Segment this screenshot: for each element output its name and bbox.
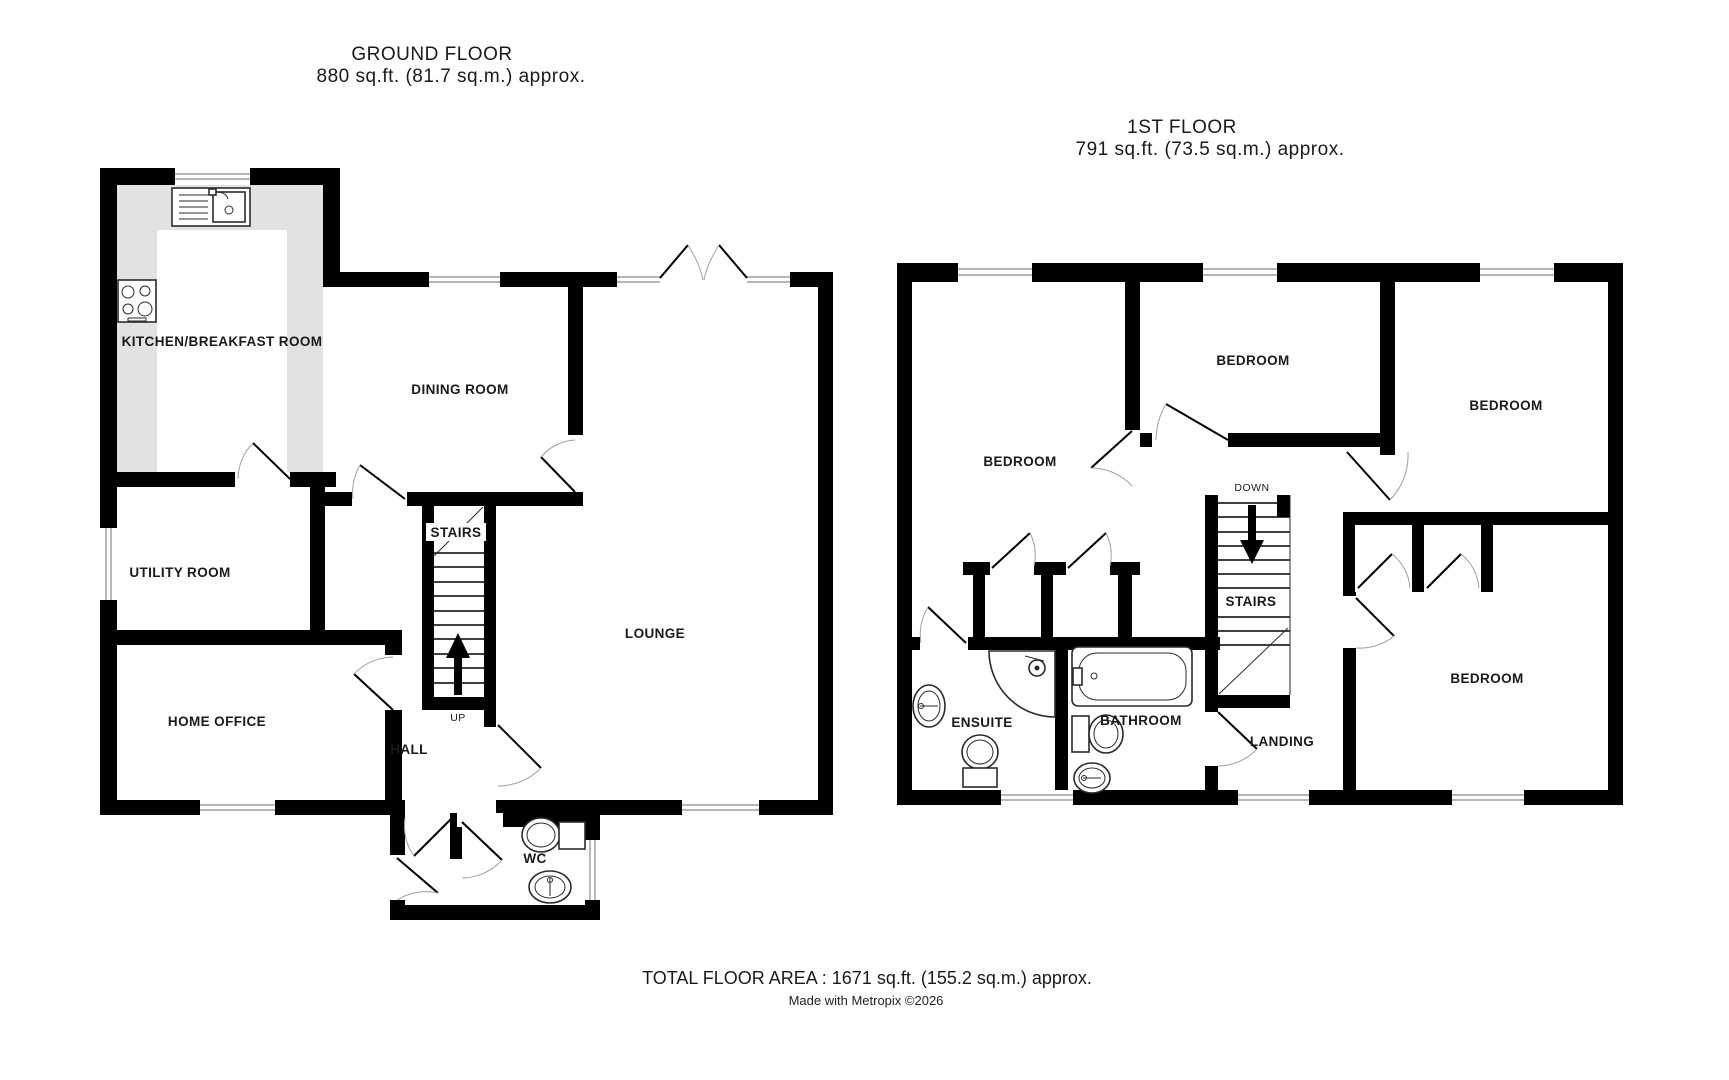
window xyxy=(1480,263,1554,282)
window xyxy=(617,272,660,287)
floorplan-drawing: KITCHEN/BREAKFAST ROOM DINING ROOM UTILI… xyxy=(0,0,1729,1080)
label-home-office: HOME OFFICE xyxy=(168,714,266,729)
svg-text:STAIRS: STAIRS xyxy=(431,525,482,540)
label-landing: LANDING xyxy=(1250,734,1314,749)
metropix-credit: Made with Metropix ©2026 xyxy=(789,993,944,1008)
window xyxy=(1238,790,1309,805)
down-arrow xyxy=(1240,505,1264,564)
label-stairs-ground: STAIRS xyxy=(426,523,486,541)
first-floor-area: 791 sq.ft. (73.5 sq.m.) approx. xyxy=(1076,139,1345,160)
floorplan-page: KITCHEN/BREAKFAST ROOM DINING ROOM UTILI… xyxy=(0,0,1729,1080)
window xyxy=(585,840,600,900)
window xyxy=(682,800,759,815)
ensuite-toilet xyxy=(962,735,998,787)
label-bedroom-left: BEDROOM xyxy=(983,454,1056,469)
window xyxy=(200,800,275,815)
label-lounge: LOUNGE xyxy=(625,626,685,641)
window xyxy=(1452,790,1524,805)
wc-toilet xyxy=(522,818,585,852)
hob xyxy=(118,280,156,322)
first-floor-plan: BEDROOM BEDROOM BEDROOM BEDROOM DOWN STA… xyxy=(897,263,1623,805)
ground-floor-title: GROUND FLOOR xyxy=(351,44,512,65)
kitchen-sink xyxy=(172,188,250,226)
label-bedroom-bottom: BEDROOM xyxy=(1450,671,1523,686)
window xyxy=(100,528,117,600)
window xyxy=(958,263,1032,282)
label-bedroom-middle: BEDROOM xyxy=(1216,353,1289,368)
label-dining-room: DINING ROOM xyxy=(411,382,508,397)
ground-floor-area: 880 sq.ft. (81.7 sq.m.) approx. xyxy=(317,66,586,87)
ensuite-shower xyxy=(989,651,1055,717)
svg-text:STAIRS: STAIRS xyxy=(1226,594,1277,609)
bath xyxy=(1072,647,1192,706)
window xyxy=(175,168,250,185)
window xyxy=(1203,263,1277,282)
window xyxy=(747,272,790,287)
window xyxy=(429,272,500,287)
label-ensuite: ENSUITE xyxy=(951,715,1012,730)
label-down: DOWN xyxy=(1234,482,1269,494)
ground-floor-plan: KITCHEN/BREAKFAST ROOM DINING ROOM UTILI… xyxy=(100,168,833,920)
kitchen-counter xyxy=(117,185,323,472)
label-kitchen: KITCHEN/BREAKFAST ROOM xyxy=(122,334,323,349)
bathroom-basin xyxy=(1074,763,1110,793)
total-floor-area: TOTAL FLOOR AREA : 1671 sq.ft. (155.2 sq… xyxy=(642,968,1092,988)
first-floor-title: 1ST FLOOR xyxy=(1127,117,1237,138)
label-up: UP xyxy=(450,712,466,724)
ensuite-basin xyxy=(913,685,945,727)
wc-basin xyxy=(529,871,571,903)
label-bathroom: BATHROOM xyxy=(1100,713,1182,728)
up-arrow xyxy=(446,633,470,695)
label-stairs-first: STAIRS xyxy=(1221,592,1283,610)
label-wc: WC xyxy=(523,851,546,866)
label-hall: HALL xyxy=(390,742,428,757)
label-utility-room: UTILITY ROOM xyxy=(129,565,230,580)
window xyxy=(1001,790,1073,805)
label-bedroom-right: BEDROOM xyxy=(1469,398,1542,413)
